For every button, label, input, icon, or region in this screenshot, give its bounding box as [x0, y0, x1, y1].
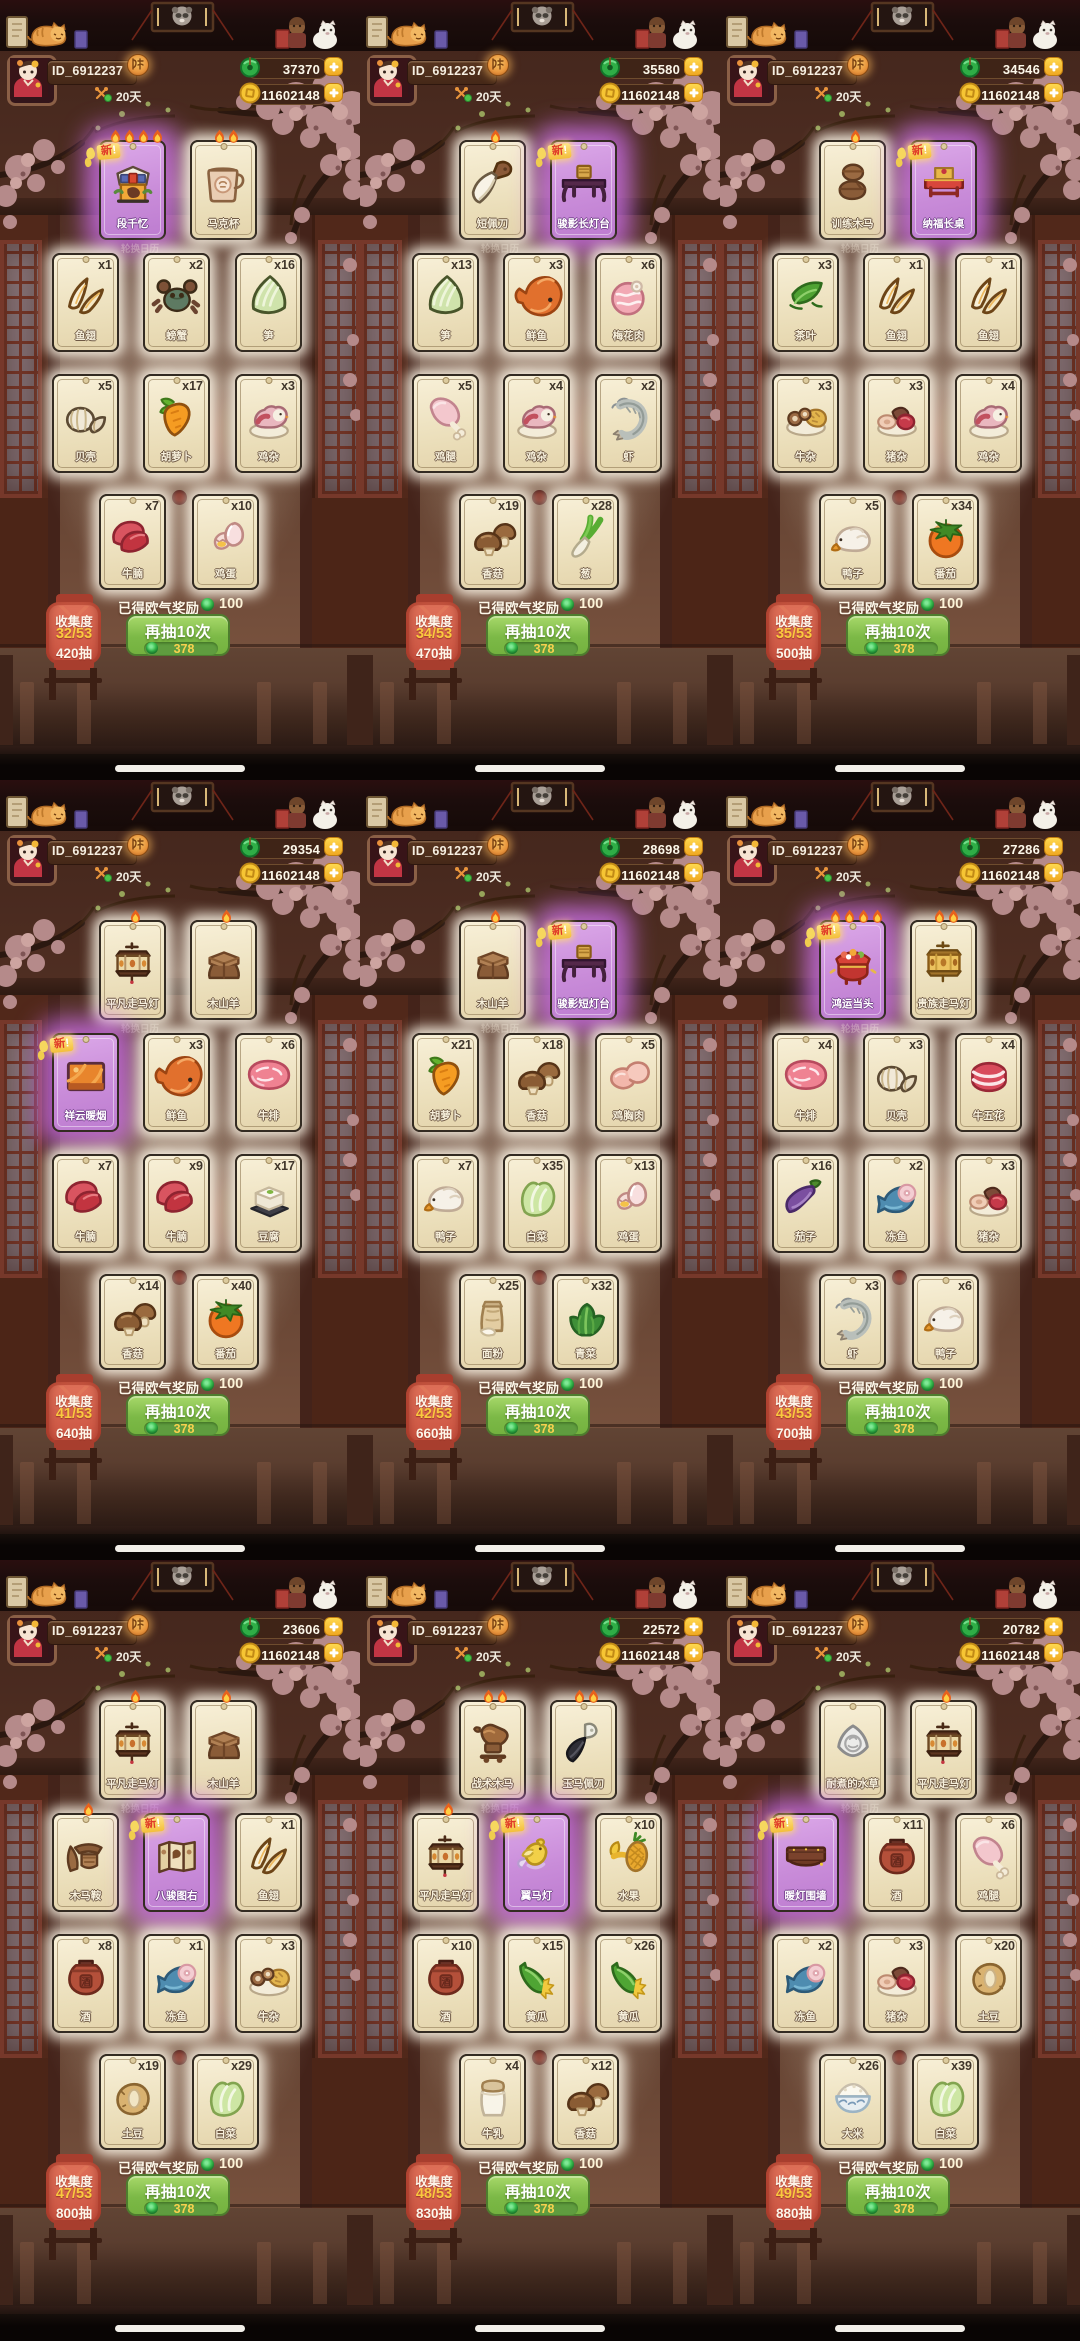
svg-text:酒: 酒 — [441, 1976, 450, 1987]
svg-text:酒: 酒 — [81, 1976, 90, 1987]
svg-text:酒: 酒 — [892, 1855, 901, 1866]
